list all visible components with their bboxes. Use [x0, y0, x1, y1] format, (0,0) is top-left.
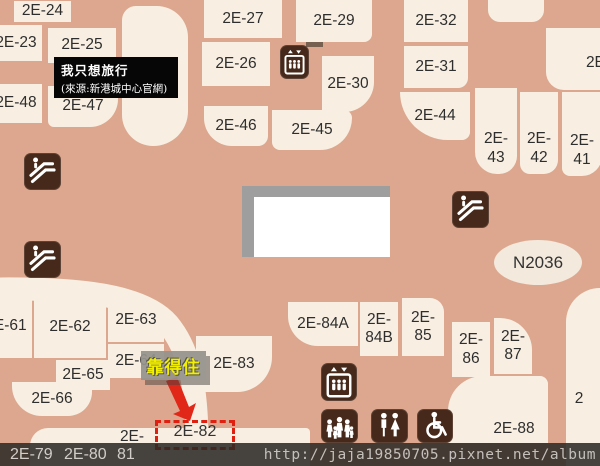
unit-label: 2E-25	[61, 36, 102, 54]
unit-label: 2E-26	[215, 55, 256, 73]
strip-unit-label: 2E-79	[10, 444, 53, 466]
watermark-url: http://jaja19850705.pixnet.net/album	[264, 445, 596, 466]
map-shape	[566, 288, 600, 466]
unit-2E-62: 2E-62	[34, 296, 106, 358]
unit-label: 2E-63	[115, 311, 156, 329]
unit-label: 2E-88	[493, 420, 534, 438]
unit-2E-46: 2E-46	[204, 106, 268, 146]
unit-2E-26: 2E-26	[202, 42, 270, 86]
unit-label: 2E-66	[31, 390, 72, 408]
restroom-icon	[371, 409, 408, 443]
unit-label: 2E-31	[415, 58, 456, 76]
unit-label: 2E-46	[215, 117, 256, 135]
room-n2036: N2036	[494, 240, 582, 285]
unit-label: 43	[487, 149, 504, 167]
unit-2E-45: 2E-45	[272, 110, 352, 150]
unit-2E-85: 2E-85	[402, 298, 444, 356]
unit-label: 2E-30	[327, 75, 368, 93]
unit-label: 84B	[365, 329, 393, 347]
unit-label: 2E-	[527, 130, 551, 148]
unit-label: 2E-23	[0, 34, 37, 52]
unit-2E-: 2E-	[578, 52, 600, 74]
unit-2E-44: 2E-44	[400, 92, 470, 140]
strip-unit-label: 2E-80	[64, 444, 107, 466]
unit-label: 2E-	[501, 328, 525, 346]
unit-2E-86: 2E-86	[452, 322, 490, 377]
annotation-line1: 我只想旅行	[61, 60, 171, 79]
unit-label: 2E-45	[291, 121, 332, 139]
unit-2E-87: 2E-87	[494, 318, 532, 374]
unit-2E-29: 2E-29	[296, 0, 372, 42]
unit-label: 2E-84A	[297, 315, 349, 333]
unit-label: 2	[575, 390, 584, 408]
store-callout-label: 靠得住	[141, 351, 206, 380]
watermark-strip: http://jaja19850705.pixnet.net/album 2E-…	[0, 443, 600, 466]
unit-label: 2E-27	[222, 10, 263, 28]
strip-unit-label: 81	[117, 444, 135, 466]
family-restroom-icon	[321, 409, 358, 443]
unit-label: 2E-24	[22, 2, 63, 20]
unit-label: 2E-61	[0, 317, 27, 335]
unit-label: 86	[462, 350, 479, 368]
unit-2E-66: 2E-66	[12, 382, 92, 416]
unit-label: 2E-	[367, 311, 391, 329]
elevator-icon	[280, 45, 309, 79]
map-shape	[488, 0, 544, 22]
escalator-icon	[24, 241, 61, 278]
unit-2E-27: 2E-27	[204, 0, 282, 38]
unit-2E-83: 2E-83	[196, 336, 272, 392]
mall-floorplan-map: 2E-242E-232E-252E-482E-472E-272E-292E-26…	[0, 0, 600, 466]
unit-label: 2E-29	[313, 12, 354, 30]
unit-2E-43: 2E-43	[475, 88, 517, 174]
unit-2E-24: 2E-24	[14, 1, 71, 22]
highlighted-unit-label: 2E-82	[160, 423, 230, 441]
unit-2E-31: 2E-31	[404, 46, 468, 88]
unit-label: 2E-	[459, 331, 483, 349]
unit-label: 2E-	[484, 130, 508, 148]
unit-2E-84A: 2E-84A	[288, 302, 358, 346]
unit-2E-42: 2E-42	[520, 92, 558, 174]
escalator-icon	[452, 191, 489, 228]
store-callout-text: 靠得住	[147, 353, 201, 378]
unit-label: 2E-44	[414, 107, 455, 125]
unit-2E-88: 2E-88	[478, 416, 550, 442]
unit-2E-61: 2E-61	[0, 294, 32, 358]
unit-label: 2E-48	[0, 94, 37, 112]
room-n2036-label: N2036	[513, 253, 563, 273]
source-annotation: 我只想旅行 (來源:新港城中心官網)	[54, 57, 178, 98]
unit-label: 2E-	[411, 309, 435, 327]
unit-2E-48: 2E-48	[0, 84, 42, 123]
unit-label: 2E-83	[213, 355, 254, 373]
unit-label: 2E-32	[415, 12, 456, 30]
escalator-icon	[24, 153, 61, 190]
unit-label: 2E-47	[62, 97, 103, 115]
elevator-icon	[321, 363, 357, 401]
atrium-void	[254, 197, 390, 257]
unit-2E-63: 2E-63	[108, 298, 164, 342]
unit-label: 85	[414, 327, 431, 345]
unit-2E-30: 2E-30	[322, 56, 374, 112]
wheelchair-accessible-icon	[417, 409, 453, 443]
unit-label: 42	[530, 149, 547, 167]
unit-2: 2	[568, 388, 590, 410]
unit-label: 2E-	[570, 132, 594, 150]
unit-label: 41	[573, 151, 590, 169]
unit-2E-84B: 2E-84B	[360, 302, 398, 356]
unit-2E-41: 2E-41	[562, 92, 600, 176]
unit-label: 2E-62	[49, 318, 90, 336]
unit-2E-23: 2E-23	[0, 25, 42, 61]
annotation-line2: (來源:新港城中心官網)	[61, 81, 171, 96]
unit-label: 2E-	[586, 54, 600, 72]
unit-2E-32: 2E-32	[404, 0, 468, 42]
unit-label: 87	[504, 346, 521, 364]
